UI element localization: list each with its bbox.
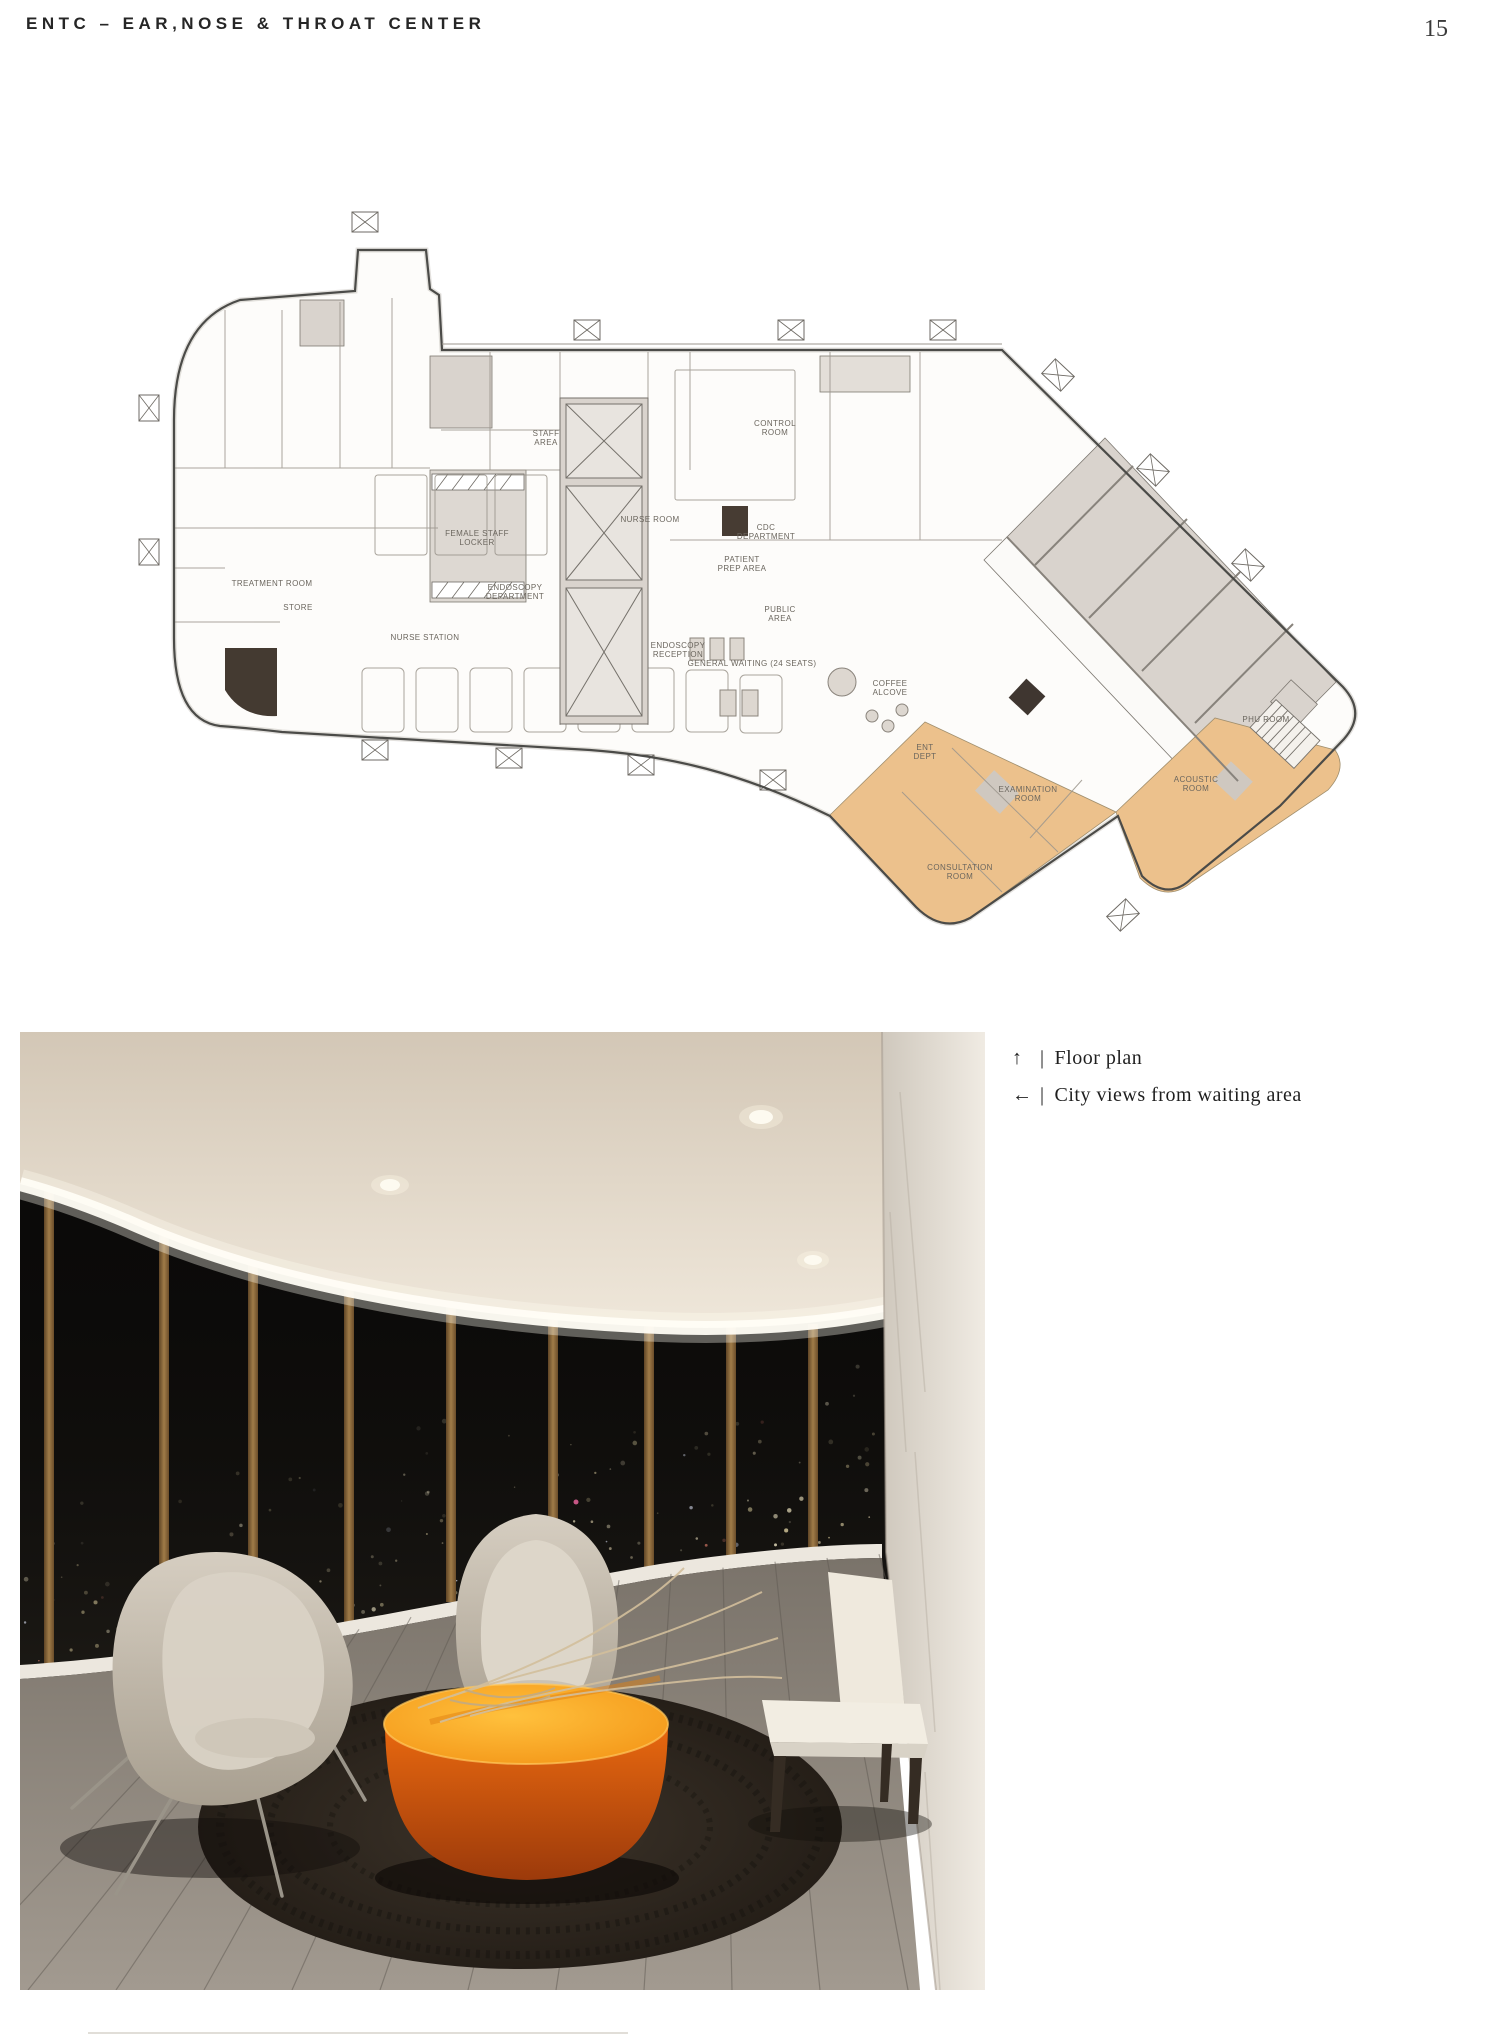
page-number: 15 xyxy=(1424,16,1448,43)
caption-city-views: ←|City views from waiting area xyxy=(1012,1077,1302,1114)
document-page: ENTC – EAR,NOSE & THROAT CENTER 15 xyxy=(0,0,1500,2040)
plan-room-label: PATIENTPREP AREA xyxy=(718,555,767,573)
plan-room-label: PUBLICAREA xyxy=(764,605,795,623)
plan-room-label: TREATMENT ROOM xyxy=(232,579,313,588)
elevator-core xyxy=(560,398,648,724)
plan-room-label: NURSE STATION xyxy=(391,633,460,642)
up-arrow-icon: ↑ xyxy=(1012,1040,1038,1077)
plan-room-label: COFFEEALCOVE xyxy=(873,679,908,697)
waiting-area-render xyxy=(20,1032,985,1990)
caption-text: City views from waiting area xyxy=(1055,1084,1302,1106)
page-title: ENTC – EAR,NOSE & THROAT CENTER xyxy=(26,14,485,34)
plan-room-label: GENERAL WAITING (24 SEATS) xyxy=(688,659,817,668)
caption-text: Floor plan xyxy=(1055,1047,1143,1069)
chair-shadow xyxy=(60,1818,360,1878)
plan-room-label: ENDOSCOPYRECEPTION xyxy=(651,641,706,659)
seat-cushion xyxy=(195,1718,315,1758)
floor-plan-drawing: ENDOSCOPYDEPARTMENTPUBLICAREACDCDEPARTME… xyxy=(130,170,1370,950)
plan-room-label: ENDOSCOPYDEPARTMENT xyxy=(486,583,544,601)
caption-separator: | xyxy=(1038,1040,1055,1077)
floor-plan: ENDOSCOPYDEPARTMENTPUBLICAREACDCDEPARTME… xyxy=(130,170,1370,950)
scan-artifact-line xyxy=(88,2032,628,2034)
seat-edge xyxy=(770,1742,928,1758)
chair-seat xyxy=(762,1700,928,1744)
plan-room-label: STORE xyxy=(283,603,312,612)
caption-floor-plan: ↑|Floor plan xyxy=(1012,1040,1302,1077)
plan-room-label: NURSE ROOM xyxy=(620,515,679,524)
waiting-area-photo xyxy=(20,1032,985,1990)
plan-room-label: STAFFAREA xyxy=(533,429,560,447)
caption-separator: | xyxy=(1038,1077,1055,1114)
plan-room-label: ENTDEPT xyxy=(914,743,937,761)
photo-captions: ↑|Floor plan ←|City views from waiting a… xyxy=(1012,1040,1302,1114)
plan-room-label: PHU ROOM xyxy=(1242,715,1289,724)
left-arrow-icon: ← xyxy=(1012,1077,1038,1114)
